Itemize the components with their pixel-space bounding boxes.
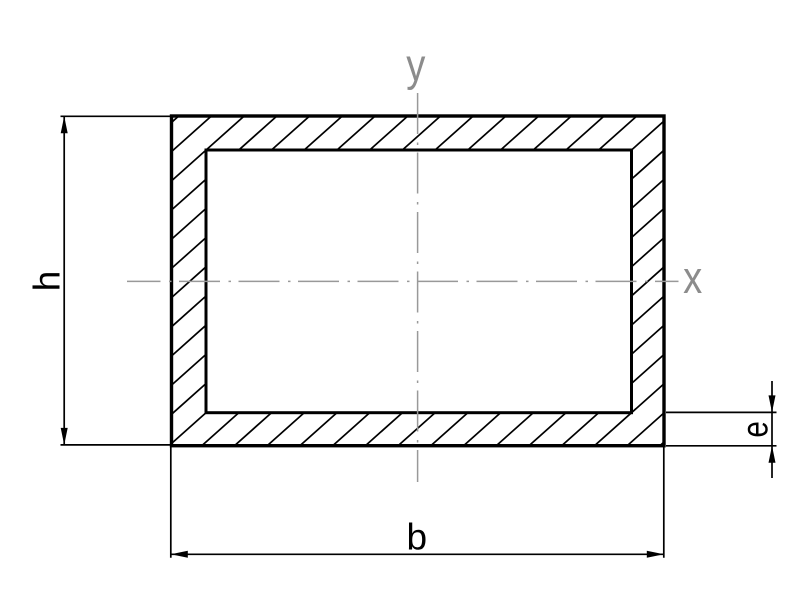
svg-text:e: e xyxy=(735,421,776,437)
svg-text:h: h xyxy=(27,271,68,292)
svg-text:y: y xyxy=(406,40,425,91)
svg-text:x: x xyxy=(683,252,702,303)
svg-text:b: b xyxy=(407,517,428,558)
